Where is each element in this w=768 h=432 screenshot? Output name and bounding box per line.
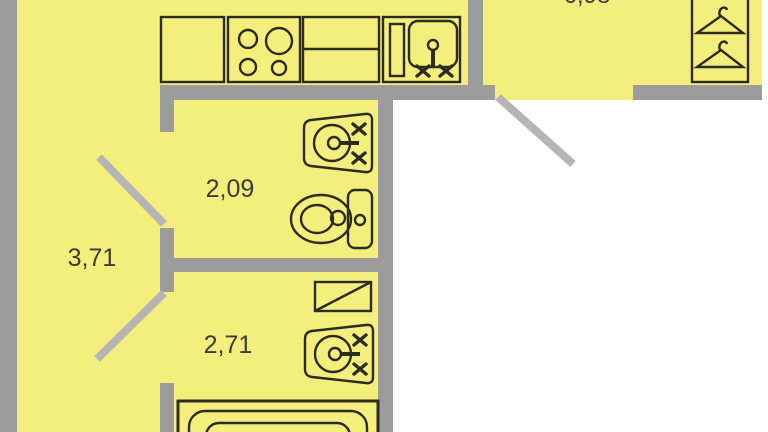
floor-plan: 3,71 2,09 2,71 6,98 <box>0 0 768 432</box>
washbasin-icon <box>304 114 372 172</box>
wardrobe-icon <box>692 0 748 82</box>
hanger-icon <box>697 8 743 33</box>
fixtures-layer <box>0 0 768 432</box>
bathtub-icon <box>178 401 378 432</box>
door-swing-bathroom-icon <box>99 157 164 224</box>
stove-icon <box>228 17 300 82</box>
toilet-icon <box>291 190 372 248</box>
room-label-bathroom: 2,09 <box>186 177 274 202</box>
washing-machine-icon <box>315 282 371 311</box>
room-label-corridor: 6,98 <box>543 0 631 8</box>
kitchen-sink-icon <box>383 17 460 82</box>
door-swing-washroom-icon <box>97 293 164 359</box>
washbasin-icon <box>305 325 373 383</box>
room-label-hallway: 3,71 <box>48 246 136 271</box>
kitchen-counter-icon <box>303 17 379 82</box>
door-swing-corridor-icon <box>498 97 573 164</box>
kitchen-cabinet-icon <box>161 17 224 82</box>
hanger-icon <box>697 42 743 67</box>
room-label-washroom: 2,71 <box>184 333 272 358</box>
